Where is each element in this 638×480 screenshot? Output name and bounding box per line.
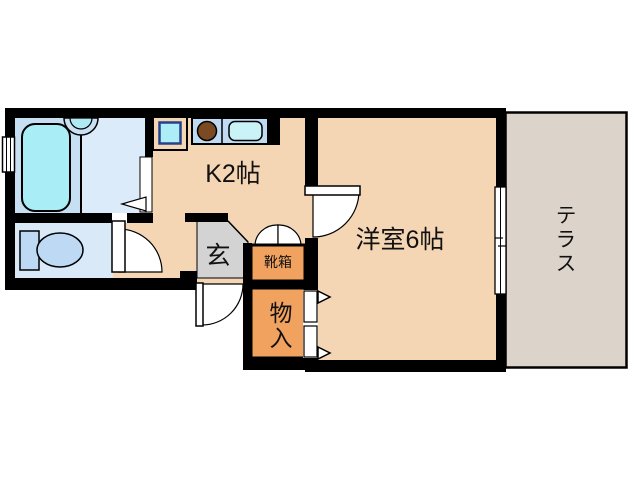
shoebox-label: 靴箱 bbox=[251, 255, 305, 270]
kitchen-label: K2帖 bbox=[200, 161, 266, 187]
wall-bath-bottom bbox=[5, 213, 153, 223]
toilet-door-leaf bbox=[112, 221, 125, 272]
door-swing-icon bbox=[202, 284, 243, 325]
terrace-label: テラス bbox=[549, 198, 575, 282]
washing-machine-pan-icon bbox=[160, 123, 181, 144]
western-room-label: 洋室6帖 bbox=[338, 227, 462, 253]
bathroom-window bbox=[3, 137, 15, 172]
terrace-window bbox=[495, 187, 506, 294]
stove-burner-icon bbox=[198, 122, 217, 141]
kitchen-sink-icon bbox=[229, 122, 262, 141]
storage-door-panel bbox=[304, 326, 317, 357]
bathtub-icon bbox=[22, 124, 70, 211]
entrance-door-leaf bbox=[196, 283, 203, 326]
wall-top bbox=[5, 108, 505, 118]
floor-plan-canvas bbox=[0, 0, 638, 480]
western-room-door-leaf bbox=[305, 186, 360, 195]
wall-genkan-top bbox=[185, 213, 228, 222]
storage-door-panel bbox=[304, 291, 317, 322]
wall-left bbox=[5, 108, 15, 290]
toilet-tank bbox=[20, 231, 39, 270]
storage-label: 物入 bbox=[265, 297, 291, 355]
wall-right-upper bbox=[496, 108, 506, 188]
sliding-window-icon bbox=[3, 137, 15, 172]
wall-counter-stub bbox=[268, 108, 280, 145]
wall-main-bottom bbox=[305, 360, 506, 372]
wall-door-stub bbox=[180, 271, 197, 281]
wall-bottom-west bbox=[5, 278, 197, 290]
floor-plan: K2帖 洋室6帖 テラス 玄 靴箱 物入 bbox=[0, 0, 638, 480]
toilet-icon bbox=[37, 233, 83, 267]
wall-bath-east bbox=[145, 108, 153, 157]
wall-right-lower bbox=[496, 294, 506, 372]
entrance-label: 玄 bbox=[201, 243, 235, 269]
wall-center-upper bbox=[305, 108, 318, 190]
